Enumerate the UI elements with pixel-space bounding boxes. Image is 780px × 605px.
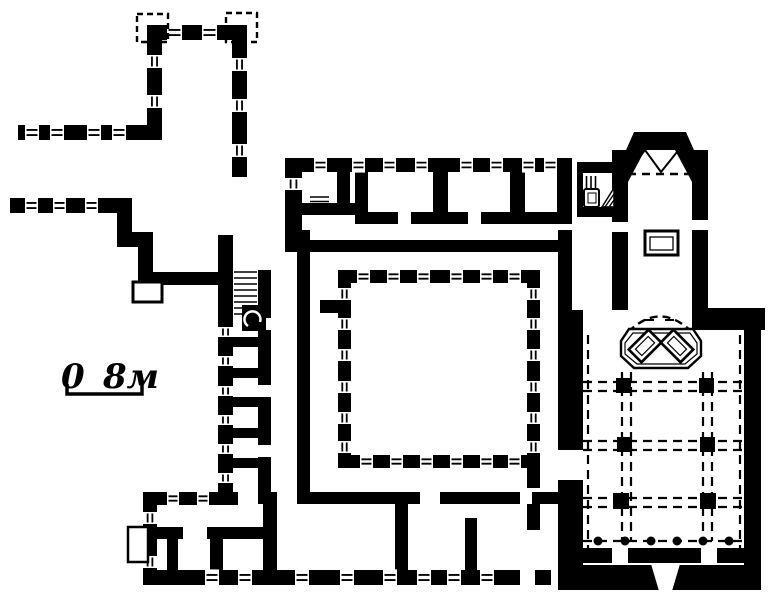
- wall: [231, 368, 260, 378]
- narthex-column: [594, 537, 603, 546]
- window-opening: [490, 157, 503, 172]
- window-opening: [87, 124, 101, 140]
- window-opening: [337, 318, 351, 330]
- narthex-column: [673, 537, 682, 546]
- wall: [527, 468, 540, 488]
- window-opening: [383, 569, 397, 585]
- stair-tower-well: [584, 189, 599, 207]
- window-opening: [205, 569, 219, 585]
- wall: [231, 458, 260, 468]
- wall: [157, 527, 183, 539]
- window-opening: [387, 269, 400, 283]
- window-opening: [526, 288, 540, 300]
- wall: [527, 504, 540, 530]
- wall: [583, 548, 612, 563]
- window-opening: [415, 157, 428, 172]
- window-opening: [314, 157, 327, 172]
- wall: [395, 504, 408, 572]
- window-opening: [337, 381, 351, 393]
- window-opening: [146, 55, 162, 68]
- window-opening: [352, 157, 365, 172]
- window-opening: [112, 124, 126, 140]
- window-opening: [337, 288, 351, 300]
- wall: [612, 232, 628, 310]
- window-opening: [50, 124, 64, 140]
- wall: [433, 172, 448, 212]
- wall: [320, 300, 338, 313]
- window-opening: [53, 197, 66, 213]
- wall: [692, 230, 708, 310]
- wall: [532, 492, 558, 504]
- window-opening: [217, 415, 233, 425]
- narthex-column: [725, 537, 734, 546]
- narthex-column: [699, 537, 708, 546]
- window-opening: [420, 454, 433, 468]
- wall: [143, 570, 520, 585]
- wall: [297, 230, 310, 492]
- window-opening: [217, 444, 233, 454]
- window-opening: [390, 454, 403, 468]
- wall: [411, 212, 468, 224]
- scale-bar: 0 8м: [61, 357, 159, 397]
- wall: [167, 539, 178, 572]
- window-opening: [450, 454, 463, 468]
- window-opening: [522, 157, 535, 172]
- narthex-column: [647, 537, 656, 546]
- window-opening: [480, 569, 494, 585]
- window-opening: [480, 454, 493, 468]
- window-opening: [340, 569, 354, 585]
- monastery-floor-plan: 0 8м: [0, 0, 780, 605]
- floor-plan-page: 0 8м: [0, 0, 780, 605]
- scale-length-label: 8м: [102, 357, 159, 397]
- wall: [481, 212, 572, 224]
- window-opening: [25, 124, 39, 140]
- window-opening: [217, 327, 233, 337]
- wall: [297, 492, 420, 504]
- wall: [744, 308, 761, 590]
- window-opening: [508, 269, 521, 283]
- window-opening: [217, 356, 233, 366]
- window-opening: [526, 349, 540, 361]
- wall: [717, 548, 744, 563]
- narthex-column: [621, 537, 630, 546]
- window-opening: [460, 157, 473, 172]
- wall: [263, 504, 277, 572]
- window-opening: [197, 491, 209, 505]
- window-opening: [417, 569, 431, 585]
- wall: [231, 337, 260, 347]
- wall: [440, 492, 520, 504]
- wall: [535, 570, 551, 585]
- window-opening: [526, 412, 540, 424]
- wall: [465, 518, 477, 572]
- window-opening: [202, 24, 217, 40]
- porch-outline: [133, 282, 162, 302]
- window-opening: [167, 491, 179, 505]
- window-opening: [295, 569, 309, 585]
- window-opening: [85, 197, 98, 213]
- wall: [231, 397, 260, 407]
- wall: [300, 240, 558, 252]
- scale-zero-label: 0: [61, 357, 85, 397]
- window-opening: [167, 24, 182, 40]
- window-opening: [357, 269, 370, 283]
- wall: [210, 539, 223, 572]
- window-opening: [284, 178, 302, 190]
- wall: [231, 428, 260, 438]
- window-opening: [526, 441, 540, 453]
- window-opening: [217, 473, 233, 483]
- wall: [207, 527, 267, 539]
- window-opening: [526, 318, 540, 330]
- window-opening: [231, 58, 247, 71]
- window-opening: [360, 454, 373, 468]
- window-opening: [146, 95, 162, 108]
- window-opening: [337, 412, 351, 424]
- window-opening: [217, 386, 233, 396]
- window-opening: [383, 157, 396, 172]
- wall: [558, 230, 572, 310]
- wall: [285, 158, 302, 252]
- window-opening: [544, 157, 557, 172]
- paper-background: [0, 0, 780, 605]
- wall: [337, 172, 350, 205]
- window-opening: [526, 381, 540, 393]
- window-opening: [337, 349, 351, 361]
- window-opening: [480, 269, 493, 283]
- bay-outline: [128, 527, 148, 562]
- window-opening: [450, 269, 463, 283]
- wall: [368, 212, 398, 224]
- wall: [143, 492, 238, 505]
- window-opening: [508, 454, 521, 468]
- wall: [355, 172, 368, 224]
- wall: [628, 548, 701, 563]
- wall: [558, 310, 583, 450]
- wall: [510, 172, 525, 212]
- window-opening: [231, 99, 247, 112]
- window-opening: [142, 512, 157, 524]
- window-opening: [238, 569, 252, 585]
- window-opening: [25, 197, 38, 213]
- window-opening: [447, 569, 461, 585]
- window-opening: [337, 441, 351, 453]
- wall: [258, 492, 277, 504]
- window-opening: [231, 144, 247, 157]
- window-opening: [417, 269, 430, 283]
